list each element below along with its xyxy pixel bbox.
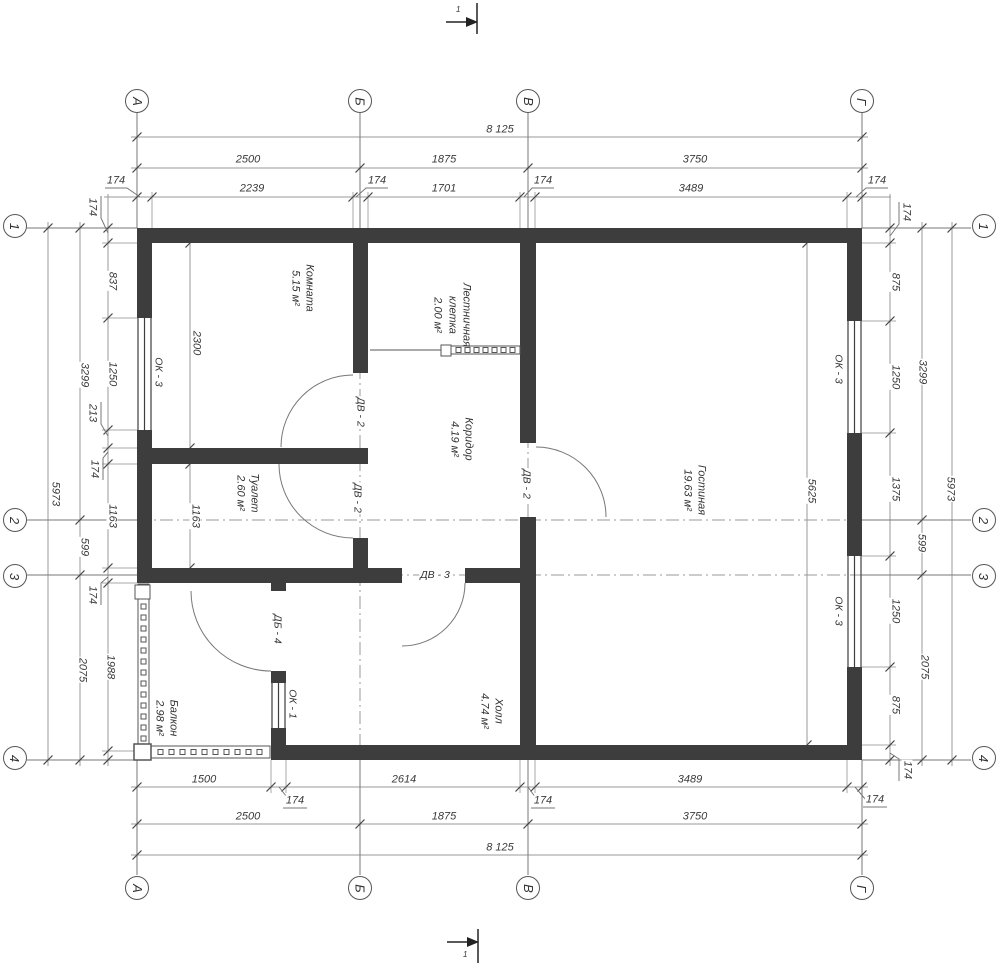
floor-plan-canvas: 8 12525001875375017422391741701174348917… xyxy=(0,0,1000,965)
axis-bubble: Г xyxy=(850,876,874,900)
dimension-label: 1500 xyxy=(191,775,217,786)
room-label: Гостиная19.63 м² xyxy=(680,465,709,515)
axis-bubble: А xyxy=(125,89,149,113)
opening-label: ДВ - 2 xyxy=(521,468,532,500)
dimension-label: 174 xyxy=(87,585,98,605)
axis-bubble-label: 4 xyxy=(977,754,990,761)
dimension-label: 3750 xyxy=(682,812,708,823)
section-mark-label: 1 xyxy=(463,951,467,959)
axis-bubble: 3 xyxy=(972,564,996,588)
axis-bubble-label: В xyxy=(521,97,534,106)
axis-bubble: В xyxy=(516,89,540,113)
dimension-label: 599 xyxy=(916,533,927,553)
axis-bubble: 4 xyxy=(972,746,996,770)
axis-bubble: 3 xyxy=(3,564,27,588)
opening-label: ОК - 3 xyxy=(833,353,844,385)
dimension-label: 1875 xyxy=(431,155,457,166)
dimension-label: 1250 xyxy=(890,598,901,624)
axis-bubble-label: 2 xyxy=(8,516,21,523)
dimension-label: 2500 xyxy=(235,155,261,166)
room-label-line: Балкон xyxy=(166,700,180,737)
room-label-line: Коридор xyxy=(461,417,475,460)
dimension-label: 875 xyxy=(890,695,901,715)
section-mark-label: 1 xyxy=(456,6,460,14)
room-label-line: 2.60 м² xyxy=(233,473,247,512)
dimension-label: 1701 xyxy=(431,184,457,195)
dimension-label: 2239 xyxy=(239,184,265,195)
axis-bubble: 4 xyxy=(3,746,27,770)
dimension-label: 174 xyxy=(902,760,913,780)
dimension-label: 3299 xyxy=(917,359,928,385)
axis-bubble-label: 3 xyxy=(977,572,990,579)
axis-bubble-label: Г xyxy=(855,97,868,104)
room-label: Холл4.74 м² xyxy=(477,693,506,729)
room-label-line: 4.74 м² xyxy=(477,693,491,729)
dimension-label: 174 xyxy=(865,795,885,806)
axis-bubble-label: 2 xyxy=(977,516,990,523)
room-label-line: 19.63 м² xyxy=(680,465,694,515)
axis-bubble: 2 xyxy=(972,508,996,532)
dimension-label: 2300 xyxy=(191,330,202,356)
room-label-line: 5.15 м² xyxy=(288,264,302,311)
room-label-line: Холл xyxy=(491,693,505,729)
opening-label: ОК - 3 xyxy=(833,595,844,627)
dimension-label: 174 xyxy=(87,197,98,217)
room-label: Комната5.15 м² xyxy=(288,264,317,311)
axis-bubble: Б xyxy=(348,89,372,113)
dimension-label: 8 125 xyxy=(485,843,515,854)
dimension-label: 1988 xyxy=(105,654,116,680)
room-label: Туалет2.60 м² xyxy=(233,473,262,512)
dimension-label: 1250 xyxy=(107,361,118,387)
axis-bubble: В xyxy=(516,876,540,900)
dimension-label: 3489 xyxy=(678,184,704,195)
opening-label: ДБ - 4 xyxy=(272,613,283,644)
dimension-label: 174 xyxy=(901,202,912,222)
axis-bubble-label: В xyxy=(521,884,534,893)
dimension-label: 875 xyxy=(890,272,901,292)
opening-label: ДВ - 2 xyxy=(352,482,363,514)
axis-bubble-label: А xyxy=(130,97,143,106)
room-label-line: 4.19 м² xyxy=(447,417,461,460)
room-label-line: клетка xyxy=(445,283,459,347)
dimension-label: 174 xyxy=(89,459,100,479)
dimension-label: 2075 xyxy=(919,654,930,680)
dimension-label: 174 xyxy=(106,176,126,187)
dimension-label: 174 xyxy=(867,176,887,187)
axis-bubble: 1 xyxy=(3,214,27,238)
dimension-label: 3489 xyxy=(677,775,703,786)
room-label: Коридор4.19 м² xyxy=(447,417,476,460)
dimension-label: 3299 xyxy=(79,362,90,388)
room-label: Балкон2.98 м² xyxy=(152,700,181,737)
axis-bubble-label: Б xyxy=(354,884,367,892)
dimension-label: 174 xyxy=(533,796,553,807)
dimension-label: 174 xyxy=(533,176,553,187)
dimension-label: 1875 xyxy=(431,812,457,823)
opening-label: ОК - 1 xyxy=(287,688,298,720)
axis-bubble: 1 xyxy=(972,214,996,238)
opening-label: ОК - 3 xyxy=(153,356,164,388)
dimension-label: 8 125 xyxy=(485,125,515,136)
axis-bubble-label: Г xyxy=(855,884,868,891)
dimension-label: 174 xyxy=(285,796,305,807)
axis-bubble-label: 4 xyxy=(8,754,21,761)
room-label-line: Гостиная xyxy=(694,465,708,515)
axis-bubble: А xyxy=(125,876,149,900)
room-label-line: Туалет xyxy=(247,473,261,512)
dimension-label: 3750 xyxy=(682,155,708,166)
dimension-label: 5625 xyxy=(806,478,817,504)
dimension-label: 599 xyxy=(79,537,90,557)
axis-bubble-label: 3 xyxy=(8,572,21,579)
dimension-label: 2500 xyxy=(235,812,261,823)
room-label: Лестничнаяклетка2.00 м² xyxy=(431,283,474,347)
dimension-label: 1375 xyxy=(890,476,901,502)
dimension-label: 1163 xyxy=(107,503,118,529)
dimension-label: 1250 xyxy=(890,364,901,390)
dimension-label: 213 xyxy=(87,403,98,423)
dimension-label: 5973 xyxy=(945,476,956,502)
dimension-label: 174 xyxy=(367,176,387,187)
dimension-label: 2075 xyxy=(77,657,88,683)
axis-bubble-label: 1 xyxy=(8,222,21,229)
dimension-label: 2614 xyxy=(391,775,417,786)
dimension-label: 5973 xyxy=(50,481,61,507)
room-label-line: 2.00 м² xyxy=(431,283,445,347)
labels-layer: 8 12525001875375017422391741701174348917… xyxy=(0,0,1000,965)
axis-bubble: 2 xyxy=(3,508,27,532)
axis-bubble: Г xyxy=(850,89,874,113)
dimension-label: 1163 xyxy=(190,503,201,529)
dimension-label: 837 xyxy=(107,271,118,291)
axis-bubble-label: 1 xyxy=(977,222,990,229)
opening-label: ДВ - 2 xyxy=(355,396,366,428)
room-label-line: Лестничная xyxy=(459,283,473,347)
axis-bubble: Б xyxy=(348,876,372,900)
room-label-line: 2.98 м² xyxy=(152,700,166,737)
axis-bubble-label: Б xyxy=(354,97,367,105)
axis-bubble-label: А xyxy=(130,884,143,893)
room-label-line: Комната xyxy=(302,264,316,311)
opening-label: ДВ - 3 xyxy=(419,570,451,581)
